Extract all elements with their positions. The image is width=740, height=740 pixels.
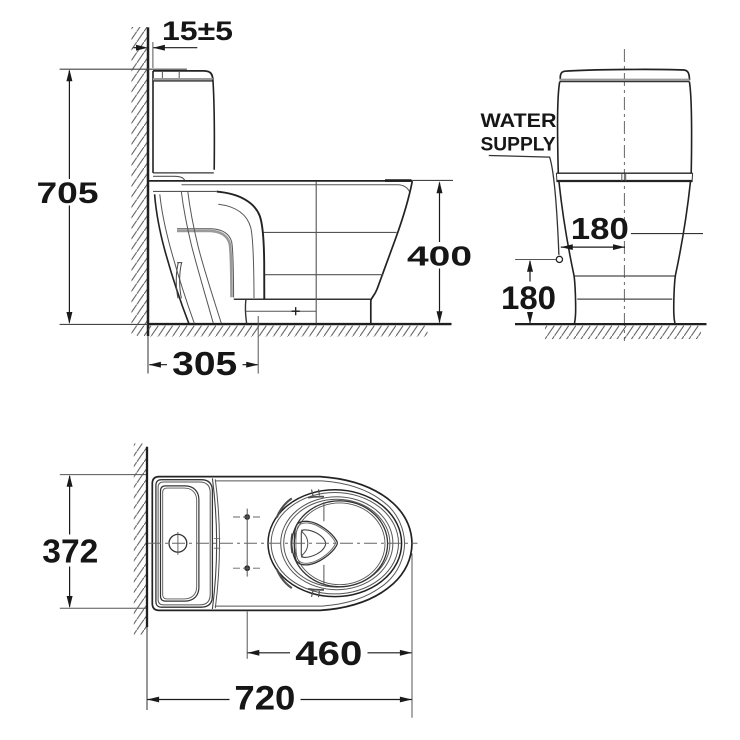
svg-text:720: 720 — [234, 680, 295, 718]
svg-text:460: 460 — [295, 635, 362, 673]
svg-text:SUPPLY: SUPPLY — [481, 134, 556, 156]
svg-text:400: 400 — [407, 240, 472, 271]
svg-text:180: 180 — [501, 280, 556, 316]
svg-text:WATER: WATER — [481, 110, 557, 132]
svg-text:305: 305 — [172, 345, 237, 382]
svg-text:15±5: 15±5 — [162, 16, 233, 46]
svg-text:180: 180 — [571, 211, 629, 246]
svg-text:372: 372 — [42, 532, 98, 569]
svg-text:705: 705 — [37, 177, 99, 210]
